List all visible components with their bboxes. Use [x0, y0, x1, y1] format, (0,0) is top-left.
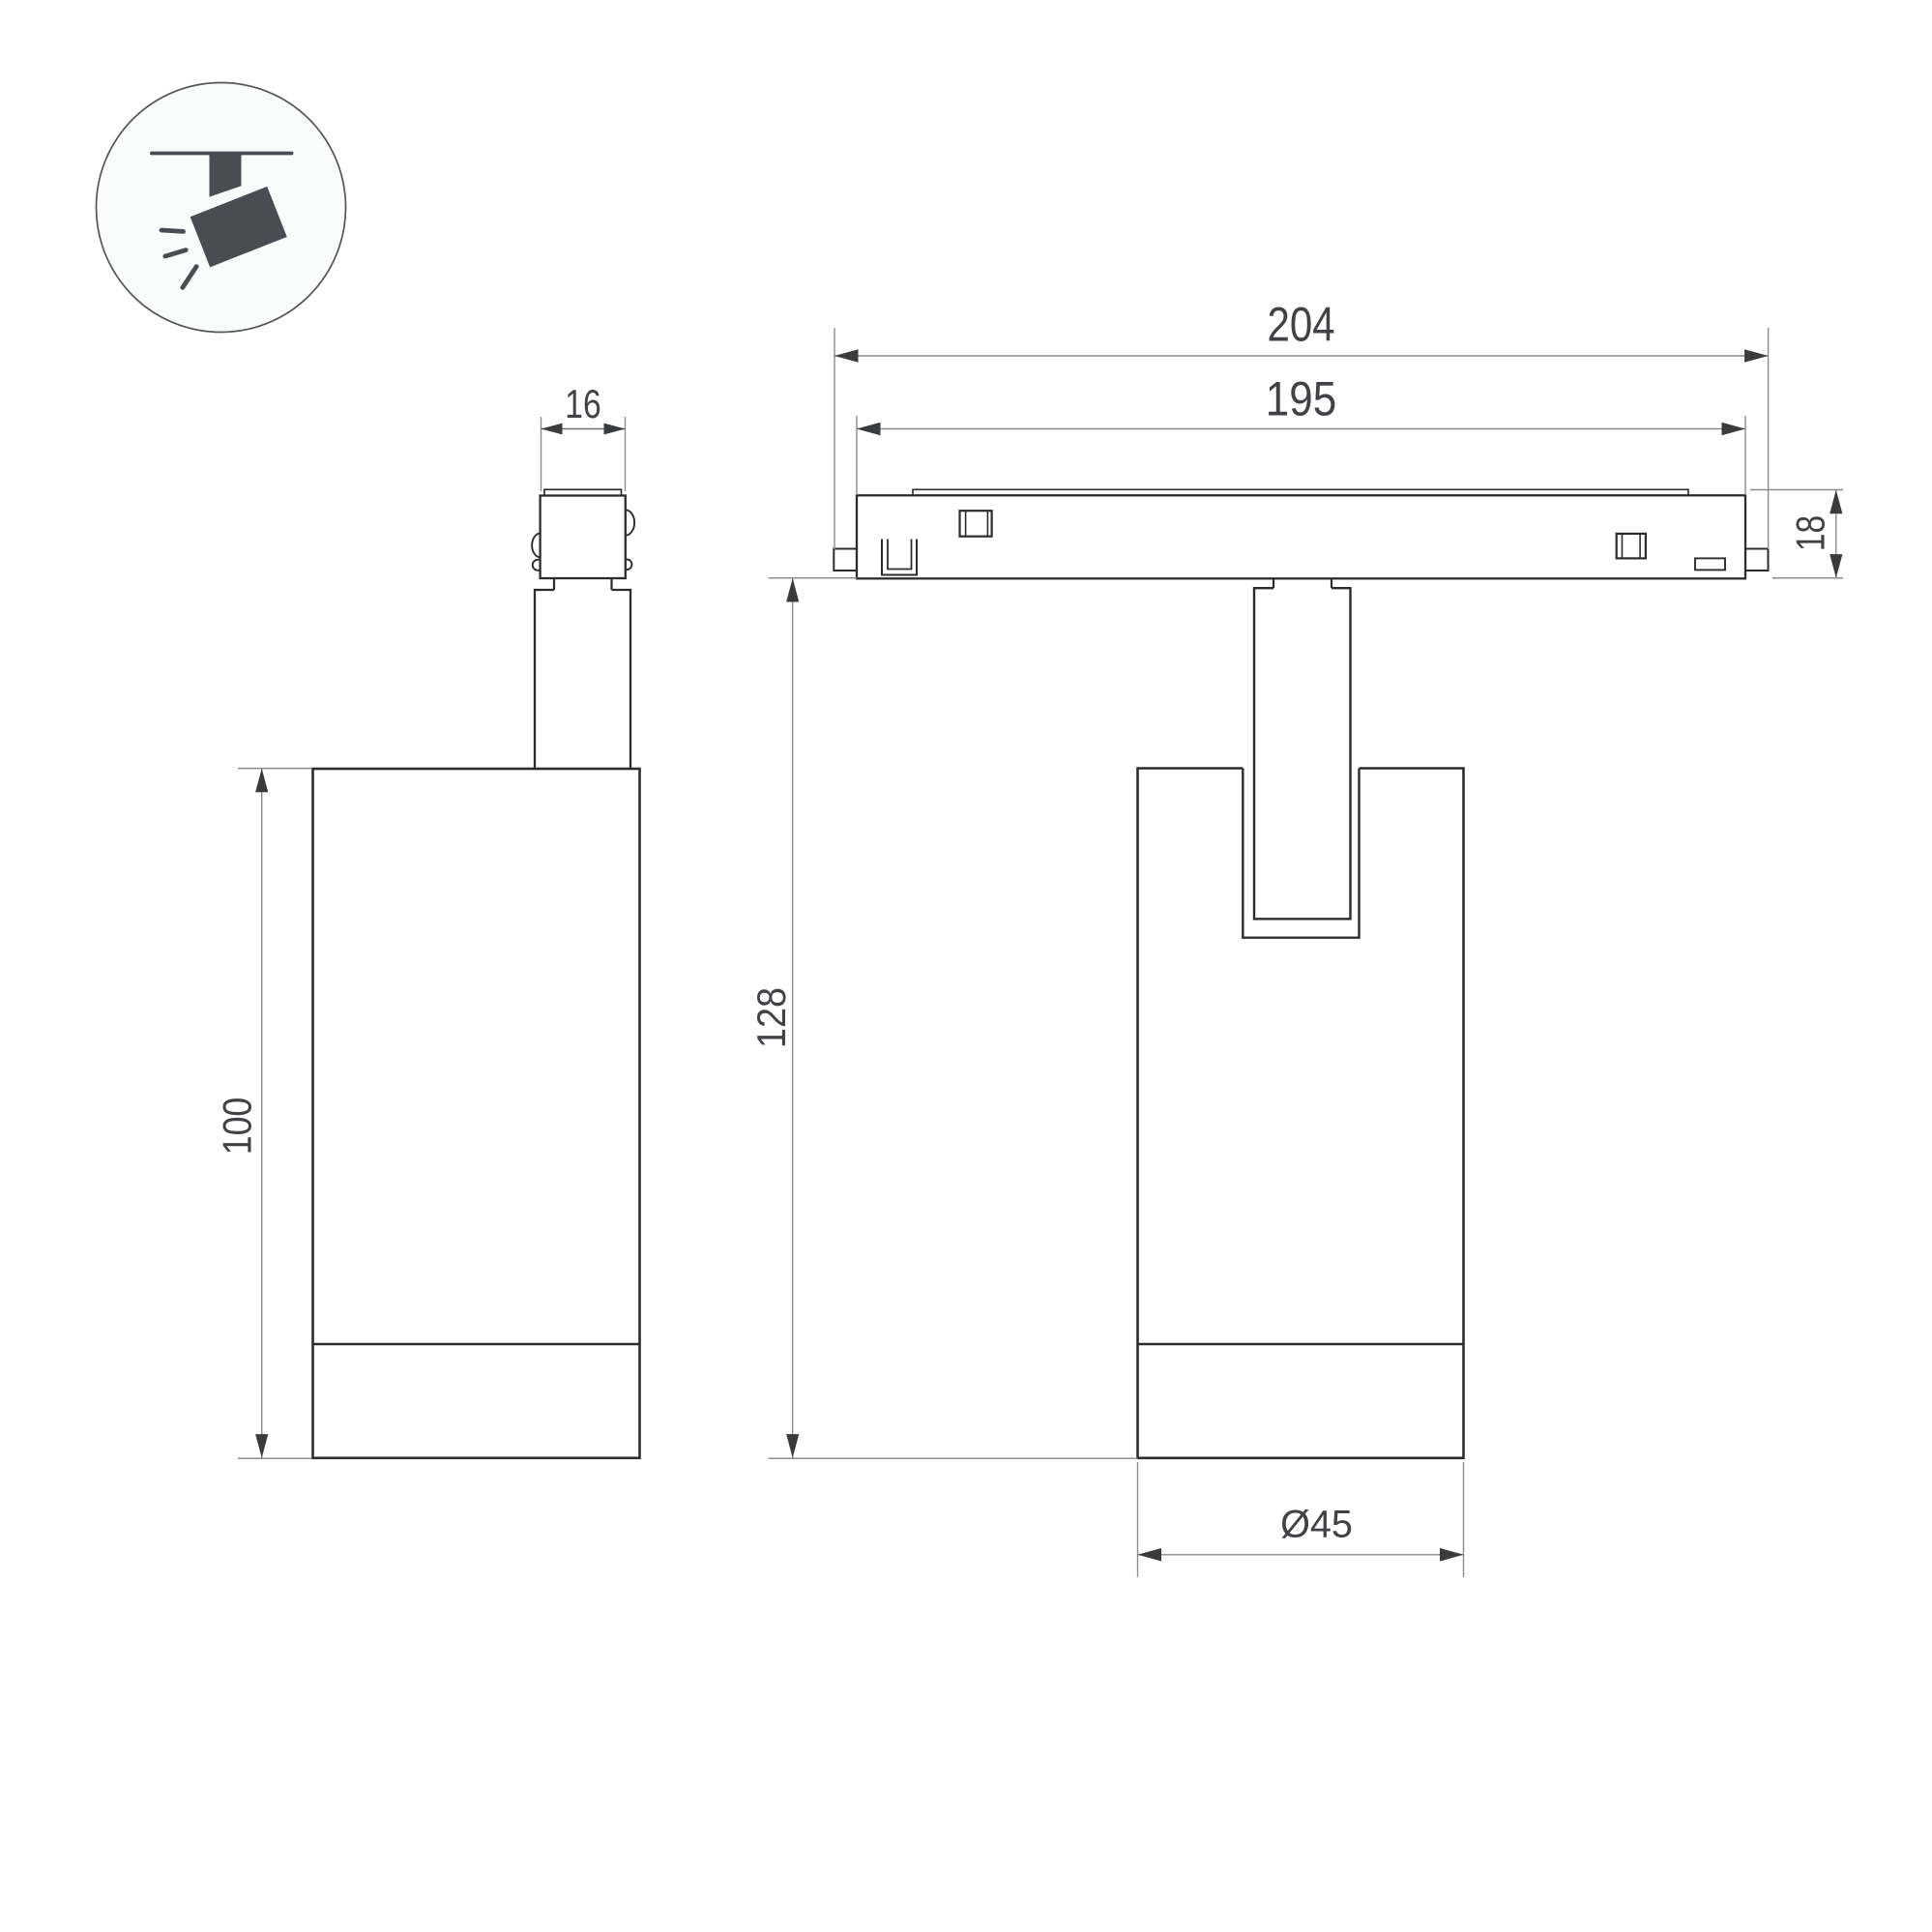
svg-text:18: 18 — [1789, 515, 1833, 551]
svg-text:100: 100 — [216, 1098, 260, 1156]
svg-text:128: 128 — [749, 987, 794, 1048]
svg-text:Ø45: Ø45 — [1280, 1503, 1353, 1545]
svg-text:16: 16 — [565, 383, 600, 427]
svg-text:204: 204 — [1267, 297, 1334, 351]
svg-text:195: 195 — [1266, 371, 1336, 425]
